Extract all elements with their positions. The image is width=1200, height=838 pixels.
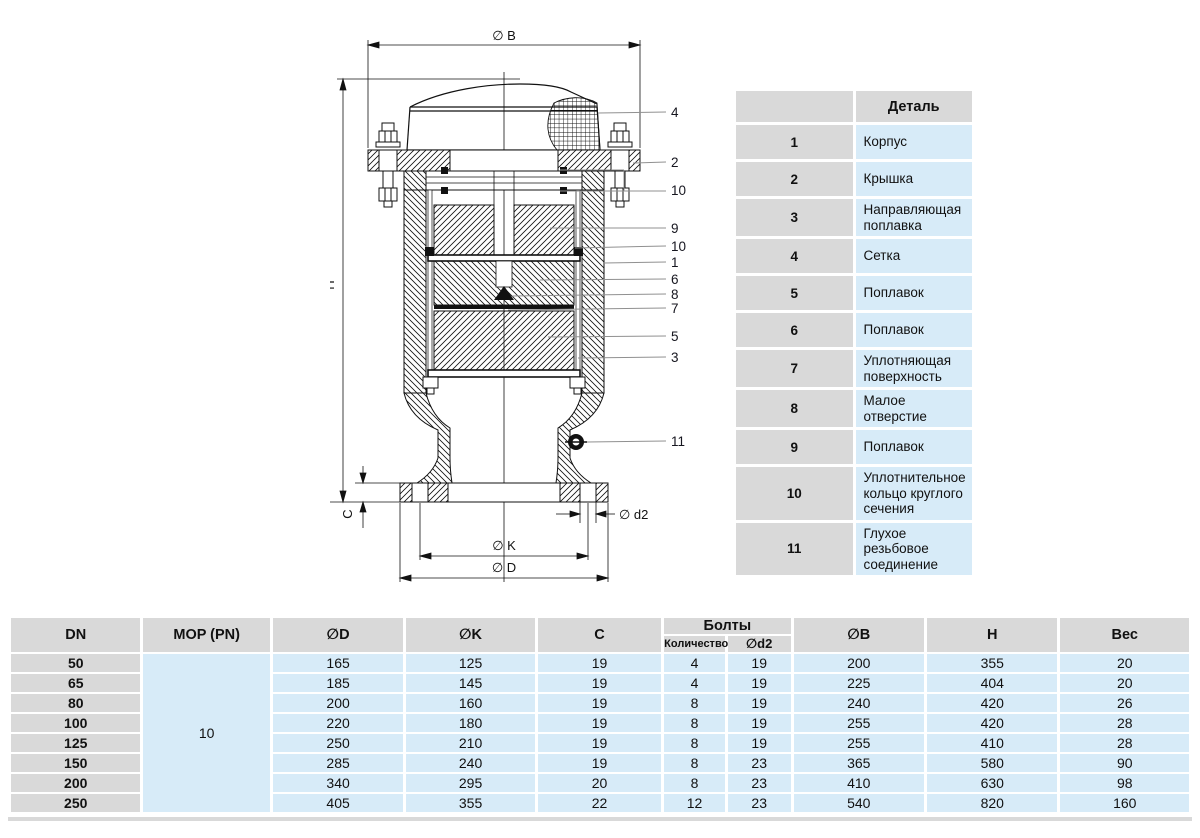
part-number: 7 (736, 350, 853, 387)
cell-bolt-qty: 8 (664, 714, 725, 732)
parts-row: 8Малое отверстие (736, 390, 972, 427)
part-number: 5 (736, 276, 853, 310)
cell-d: 220 (273, 714, 403, 732)
part-name: Крышка (856, 162, 973, 196)
cell-weight: 20 (1060, 654, 1189, 672)
cell-dn: 200 (11, 774, 140, 792)
cell-c: 19 (538, 754, 661, 772)
part-name: Корпус (856, 125, 973, 159)
header-k: ∅K (406, 618, 534, 652)
header-bolts: Болты (664, 618, 790, 634)
cell-dn: 50 (11, 654, 140, 672)
cell-h: 420 (927, 714, 1057, 732)
dim-label-b: ∅ B (492, 28, 516, 43)
cell-d: 405 (273, 794, 403, 812)
cell-bolt-d2: 19 (728, 714, 791, 732)
parts-row: 7Уплотняющая поверхность (736, 350, 972, 387)
cell-k: 145 (406, 674, 534, 692)
dim-label-d2: ∅ d2 (619, 507, 648, 522)
part-number: 3 (736, 199, 853, 236)
cell-b: 240 (794, 694, 924, 712)
callout-4: 4 (671, 105, 679, 120)
mesh-screen (548, 98, 600, 150)
dim-label-h: H (330, 280, 337, 289)
header-b: ∅B (794, 618, 924, 652)
part-name: Направляющая поплавка (856, 199, 973, 236)
parts-row: 10Уплотнительное кольцо круглого сечения (736, 467, 972, 520)
part-number: 10 (736, 467, 853, 520)
cell-b: 255 (794, 734, 924, 752)
spec-row: 50101651251941920035520 (11, 654, 1189, 672)
cell-k: 125 (406, 654, 534, 672)
cell-b: 540 (794, 794, 924, 812)
header-weight: Вес (1060, 618, 1189, 652)
valve-section-drawing: ∅ B H C ∅ d2 ∅ K ∅ D 4 2 10 9 10 1 6 8 7… (330, 10, 730, 600)
cell-dn: 65 (11, 674, 140, 692)
float-plate (428, 255, 580, 261)
cell-dn: 150 (11, 754, 140, 772)
callout-7: 7 (671, 301, 679, 316)
callout-9: 9 (671, 221, 679, 236)
cell-b: 225 (794, 674, 924, 692)
cell-bolt-d2: 23 (728, 794, 791, 812)
cell-dn: 80 (11, 694, 140, 712)
cell-weight: 160 (1060, 794, 1189, 812)
cell-c: 19 (538, 694, 661, 712)
parts-row: 4Сетка (736, 239, 972, 273)
callout-labels: 4 2 10 9 10 1 6 8 7 5 3 11 (671, 105, 686, 449)
cell-k: 295 (406, 774, 534, 792)
callout-3: 3 (671, 350, 679, 365)
cell-weight: 26 (1060, 694, 1189, 712)
part-name: Уплотняющая поверхность (856, 350, 973, 387)
part-name: Поплавок (856, 276, 973, 310)
cell-bolt-qty: 8 (664, 694, 725, 712)
page: { "diagram": { "dims": { "b": "∅ B", "h"… (0, 0, 1200, 838)
dim-label-d: ∅ D (492, 560, 516, 575)
cell-d: 165 (273, 654, 403, 672)
part-number: 4 (736, 239, 853, 273)
cell-weight: 98 (1060, 774, 1189, 792)
cell-c: 19 (538, 714, 661, 732)
header-dn: DN (11, 618, 140, 652)
bottom-plate (428, 370, 580, 377)
cell-h: 580 (927, 754, 1057, 772)
cell-bolt-qty: 4 (664, 674, 725, 692)
dimensions-table: DN MOP (PN) ∅D ∅K C Болты ∅B H Вес Колич… (8, 616, 1192, 814)
parts-row: 2Крышка (736, 162, 972, 196)
cell-h: 630 (927, 774, 1057, 792)
cell-bolt-d2: 19 (728, 654, 791, 672)
cell-bolt-qty: 8 (664, 734, 725, 752)
callout-11: 11 (671, 434, 685, 449)
cell-bolt-d2: 23 (728, 774, 791, 792)
parts-header-empty (736, 91, 853, 122)
cell-k: 160 (406, 694, 534, 712)
part-number: 8 (736, 390, 853, 427)
header-h: H (927, 618, 1057, 652)
cell-c: 20 (538, 774, 661, 792)
cell-b: 365 (794, 754, 924, 772)
part-name: Поплавок (856, 313, 973, 347)
cell-h: 420 (927, 694, 1057, 712)
parts-row: 6Поплавок (736, 313, 972, 347)
cell-weight: 90 (1060, 754, 1189, 772)
callout-5: 5 (671, 329, 679, 344)
cell-c: 19 (538, 654, 661, 672)
cell-weight: 28 (1060, 734, 1189, 752)
cell-bolt-qty: 8 (664, 774, 725, 792)
cell-h: 355 (927, 654, 1057, 672)
cell-b: 410 (794, 774, 924, 792)
callout-6: 6 (671, 272, 679, 287)
header-mop: MOP (PN) (143, 618, 269, 652)
cell-mop: 10 (143, 654, 269, 812)
cell-d: 200 (273, 694, 403, 712)
bottom-flange (400, 483, 608, 502)
cell-c: 19 (538, 734, 661, 752)
parts-row: 11Глухое резьбовое соединение (736, 523, 972, 576)
cell-weight: 28 (1060, 714, 1189, 732)
cell-bolt-qty: 8 (664, 754, 725, 772)
parts-row: 5Поплавок (736, 276, 972, 310)
parts-header-row: Деталь (736, 91, 972, 122)
cell-d: 185 (273, 674, 403, 692)
parts-row: 1Корпус (736, 125, 972, 159)
header-bolt-d2: ∅d2 (728, 636, 791, 652)
dim-label-k: ∅ K (492, 538, 516, 553)
parts-row: 9Поплавок (736, 430, 972, 464)
header-c: C (538, 618, 661, 652)
part-number: 11 (736, 523, 853, 576)
cell-bolt-qty: 12 (664, 794, 725, 812)
cell-k: 180 (406, 714, 534, 732)
cell-h: 820 (927, 794, 1057, 812)
part-name: Малое отверстие (856, 390, 973, 427)
cell-d: 250 (273, 734, 403, 752)
part-name: Поплавок (856, 430, 973, 464)
parts-header-detail: Деталь (856, 91, 973, 122)
cell-c: 19 (538, 674, 661, 692)
header-bolt-qty: Количество (664, 636, 725, 652)
cell-k: 355 (406, 794, 534, 812)
cell-c: 22 (538, 794, 661, 812)
cell-b: 200 (794, 654, 924, 672)
cell-weight: 20 (1060, 674, 1189, 692)
cell-dn: 125 (11, 734, 140, 752)
part-name: Сетка (856, 239, 973, 273)
callout-10b: 10 (671, 239, 686, 254)
table-bottom-strip (8, 817, 1192, 821)
cell-b: 255 (794, 714, 924, 732)
cell-bolt-qty: 4 (664, 654, 725, 672)
callout-8: 8 (671, 287, 679, 302)
spec-header-row-1: DN MOP (PN) ∅D ∅K C Болты ∅B H Вес (11, 618, 1189, 634)
cell-bolt-d2: 19 (728, 734, 791, 752)
cell-k: 210 (406, 734, 534, 752)
cell-bolt-d2: 19 (728, 674, 791, 692)
sealing-surface-7 (434, 305, 574, 309)
parts-row: 3Направляющая поплавка (736, 199, 972, 236)
callout-2: 2 (671, 155, 679, 170)
part-number: 1 (736, 125, 853, 159)
callout-10a: 10 (671, 183, 686, 198)
cell-h: 404 (927, 674, 1057, 692)
float-lower-5 (434, 311, 574, 370)
callout-1: 1 (671, 255, 679, 270)
cell-h: 410 (927, 734, 1057, 752)
part-number: 9 (736, 430, 853, 464)
cell-bolt-d2: 23 (728, 754, 791, 772)
part-name: Глухое резьбовое соединение (856, 523, 973, 576)
part-number: 6 (736, 313, 853, 347)
part-number: 2 (736, 162, 853, 196)
cell-bolt-d2: 19 (728, 694, 791, 712)
neck-left (404, 393, 452, 483)
parts-table: Деталь 1Корпус2Крышка3Направляющая попла… (733, 88, 975, 578)
cell-dn: 100 (11, 714, 140, 732)
cell-k: 240 (406, 754, 534, 772)
header-d: ∅D (273, 618, 403, 652)
part-name: Уплотнительное кольцо круглого сечения (856, 467, 973, 520)
cell-dn: 250 (11, 794, 140, 812)
cell-d: 340 (273, 774, 403, 792)
cell-d: 285 (273, 754, 403, 772)
dim-label-c: C (340, 509, 355, 518)
